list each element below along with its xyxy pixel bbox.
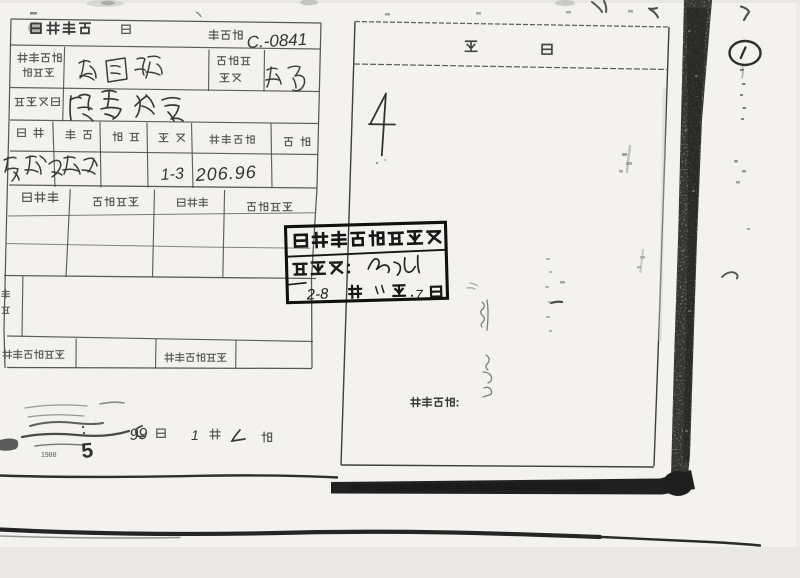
svg-text:206.96: 206.96: [194, 162, 257, 185]
svg-text:1-3: 1-3: [160, 165, 184, 184]
svg-text:2-8: 2-8: [305, 285, 329, 303]
svg-text:5: 5: [80, 439, 94, 463]
svg-text:1: 1: [191, 427, 199, 443]
svg-text:C.-0841: C.-0841: [246, 30, 307, 52]
svg-text:1988: 1988: [41, 452, 57, 459]
svg-text:99: 99: [129, 426, 148, 444]
